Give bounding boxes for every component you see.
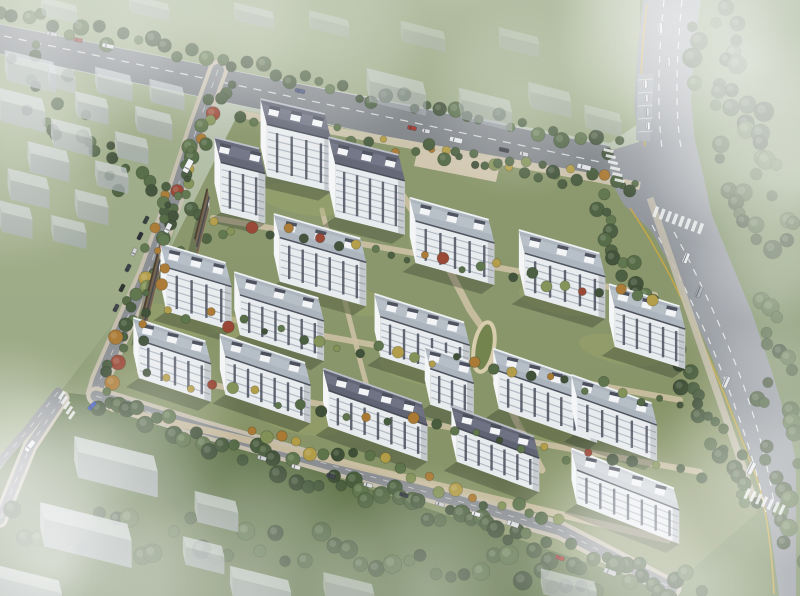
aerial-rendering [0, 0, 800, 596]
rendering-canvas [0, 0, 800, 596]
atmosphere-veil [0, 0, 800, 596]
